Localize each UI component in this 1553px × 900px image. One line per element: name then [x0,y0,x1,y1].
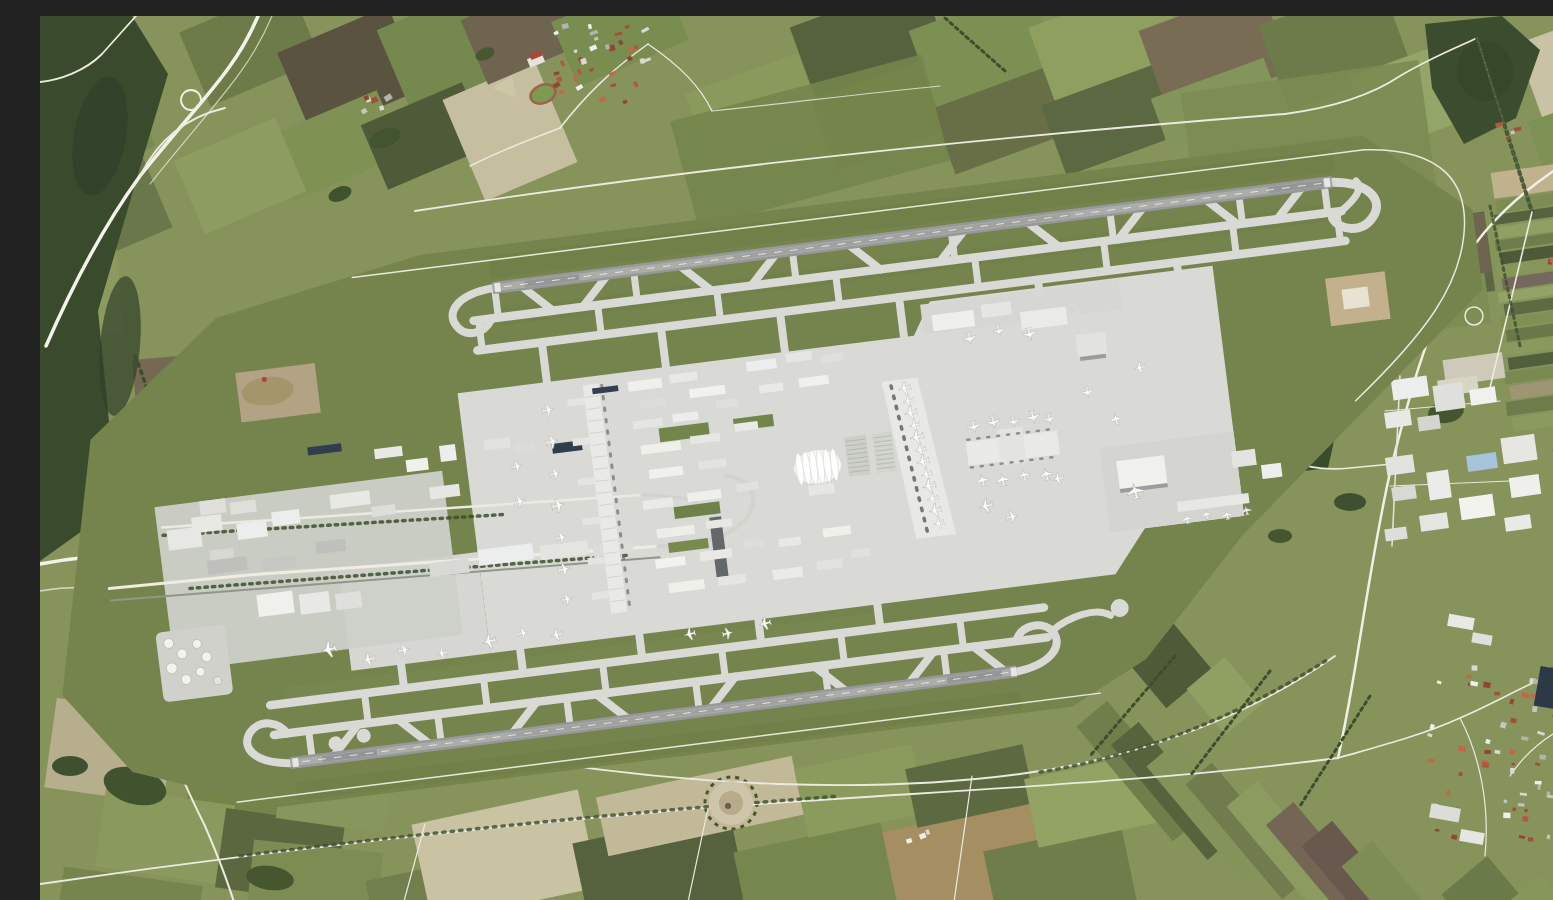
aerial-airport-scene [40,16,1553,900]
satellite-photo: Aerial satellite photograph of a large i… [40,16,1553,900]
